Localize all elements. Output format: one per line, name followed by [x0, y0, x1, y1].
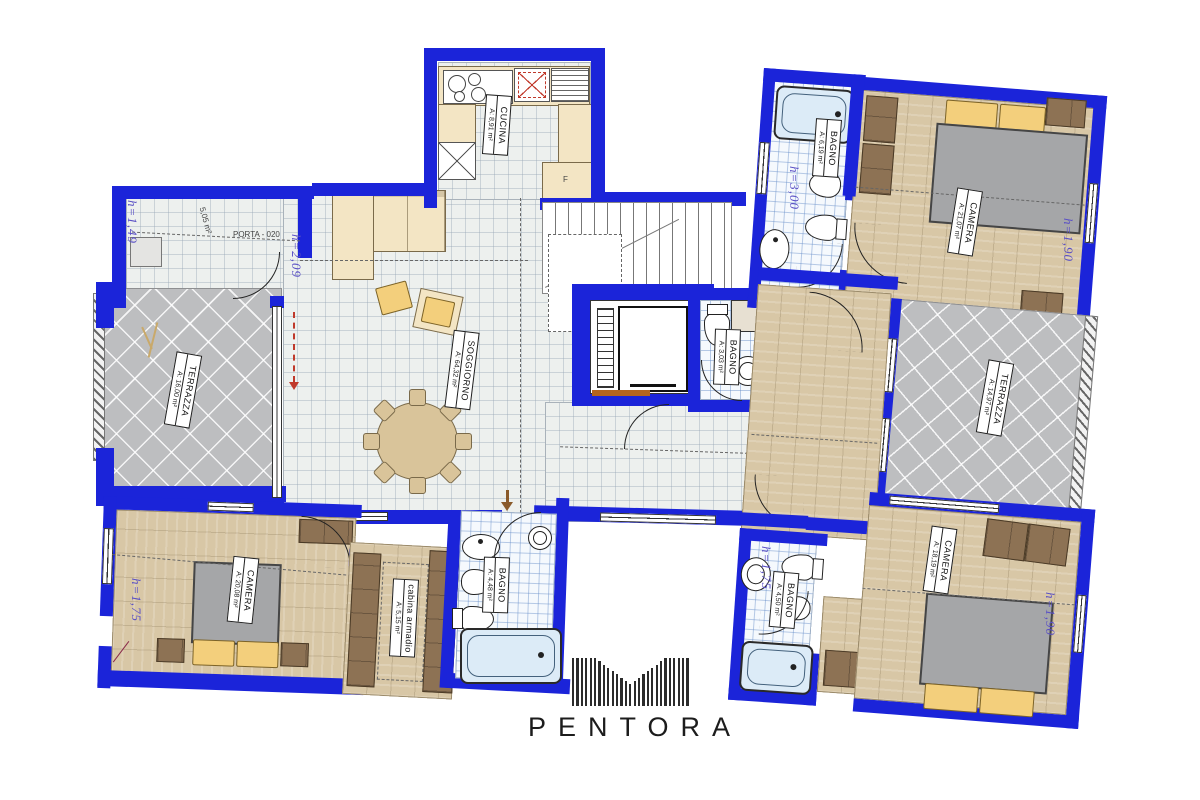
- window: [102, 528, 114, 584]
- ceiling-height-label: h=1,90: [1042, 592, 1058, 636]
- wardrobe: [982, 518, 1029, 561]
- bathtub-icon: [739, 640, 814, 695]
- porta-annotation: PORTA - 020: [233, 230, 280, 239]
- logo-bar: [594, 658, 596, 706]
- logo-bar: [572, 658, 574, 706]
- ceiling-height-label: h=1,75: [128, 578, 144, 622]
- nightstand: [280, 642, 309, 667]
- logo-bar: [581, 658, 583, 706]
- room-label-bagno-ne: BAGNO A: 6,19 m²: [812, 118, 842, 178]
- center-line: [520, 198, 521, 518]
- logo-mark: [572, 658, 692, 706]
- logo-bar: [590, 658, 592, 706]
- pillow: [236, 641, 279, 668]
- room-label-cabina: cabina armadio A: 5,15 m²: [389, 578, 419, 657]
- logo-bar: [642, 674, 644, 706]
- bathtub-icon: [460, 628, 562, 684]
- center-line: [300, 260, 528, 261]
- logo-bar: [625, 681, 627, 706]
- logo-bar: [669, 658, 671, 706]
- logo-bar: [607, 668, 609, 706]
- logo-text: PENTORA: [528, 712, 742, 743]
- logo-bar: [656, 665, 658, 706]
- ceiling-height-label: h=1,90: [1060, 218, 1076, 262]
- elevator-sill: [592, 390, 650, 396]
- fridge-label: F: [563, 175, 568, 184]
- logo-bar: [585, 658, 587, 706]
- logo-bar: [634, 681, 636, 706]
- logo-bar: [682, 658, 684, 706]
- logo-bar: [647, 671, 649, 706]
- room-name: BAGNO: [494, 558, 509, 612]
- wall: [424, 48, 604, 61]
- room-label-cucina: CUCINA A: 8,91 m²: [482, 94, 512, 156]
- logo-bar: [673, 658, 675, 706]
- logo-bar: [616, 674, 618, 706]
- window: [272, 306, 282, 498]
- logo-bar: [686, 658, 688, 706]
- dining-chair: [409, 389, 426, 406]
- logo-bar: [629, 684, 631, 706]
- sofa-chaise: [332, 190, 374, 280]
- pillow: [923, 683, 979, 713]
- entrance-arrow-head: [501, 502, 513, 511]
- wall: [591, 48, 605, 208]
- logo-bar: [678, 658, 680, 706]
- nightstand: [156, 638, 185, 663]
- dining-chair: [409, 477, 426, 494]
- floor-plan-page: { "brand": { "name": "PENTORA" }, "plan"…: [0, 0, 1200, 800]
- sink-cross: [518, 72, 546, 98]
- drainer-icon: [551, 68, 589, 102]
- wall: [312, 183, 432, 196]
- dining-chair: [455, 433, 472, 450]
- room-area: A: 4,48 m²: [483, 558, 496, 612]
- burner-icon: [468, 73, 481, 86]
- wall: [424, 58, 437, 208]
- room-label-bagno-se: BAGNO A: 4,50 m²: [769, 571, 800, 629]
- pantry-icon: [438, 142, 476, 180]
- burner-icon: [454, 91, 465, 102]
- escape-path: [293, 312, 295, 382]
- room-area: A: 3,03 m²: [714, 330, 727, 384]
- room-label-bagno-centrale: BAGNO A: 3,03 m²: [713, 329, 741, 386]
- logo-bar: [612, 671, 614, 706]
- kitchen-counter-right: [558, 104, 593, 170]
- ceiling-height-label: h=1,49: [124, 200, 140, 244]
- ceiling-height-label: h=3,00: [786, 166, 802, 210]
- wardrobe: [863, 95, 899, 143]
- lounge-cushion: [421, 296, 456, 328]
- pillow: [192, 639, 235, 666]
- logo-bar: [664, 658, 666, 706]
- pillow: [979, 687, 1035, 717]
- logo-bar: [603, 665, 605, 706]
- burner-icon: [471, 87, 486, 102]
- logo-bar: [651, 668, 653, 706]
- room-name: BAGNO: [725, 330, 740, 384]
- wardrobe: [1045, 97, 1087, 128]
- elevator-ladder: [597, 308, 614, 388]
- elevator-door: [630, 384, 676, 387]
- camera-sud-est: [853, 492, 1096, 729]
- room-label-bagno-sw: BAGNO A: 4,48 m²: [482, 557, 510, 614]
- logo-bar: [620, 678, 622, 706]
- ceiling-height-label: h=2,09: [288, 234, 304, 278]
- fridge-box: F: [542, 162, 592, 202]
- wall: [112, 186, 314, 199]
- bed: [919, 593, 1054, 695]
- wall: [96, 282, 114, 328]
- escape-arrow: [289, 382, 299, 390]
- window: [600, 512, 716, 524]
- wardrobe: [1024, 524, 1071, 567]
- logo-bar: [638, 678, 640, 706]
- logo-bar: [576, 658, 578, 706]
- logo-bar: [598, 661, 600, 706]
- window: [208, 502, 254, 513]
- dining-chair: [363, 433, 380, 450]
- kitchen-sink: [514, 68, 550, 102]
- logo-bar: [660, 661, 662, 706]
- elevator-car: [618, 306, 688, 392]
